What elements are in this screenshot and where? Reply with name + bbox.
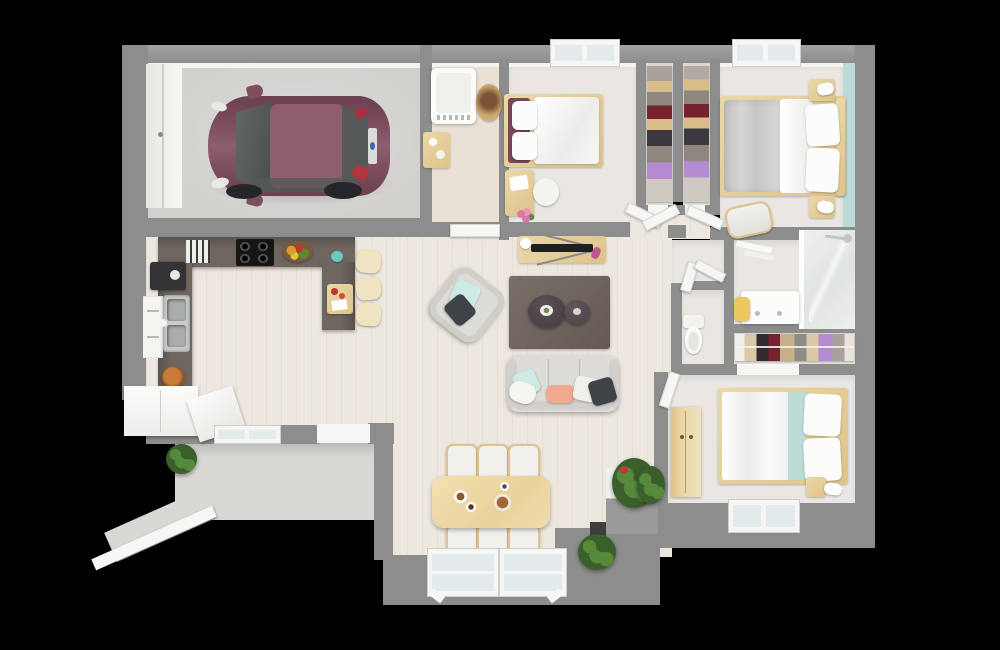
laundry-basket xyxy=(476,84,502,121)
recipe-card xyxy=(331,299,347,311)
nightstand xyxy=(809,196,835,218)
bed-duvet xyxy=(722,392,790,480)
window-glass xyxy=(733,505,761,527)
wall xyxy=(374,442,393,560)
wall xyxy=(855,45,875,520)
wardrobe-seam xyxy=(685,411,686,493)
laptop xyxy=(509,175,529,191)
bed-blanket xyxy=(724,100,782,192)
plant xyxy=(578,534,616,570)
laundry-table xyxy=(423,132,450,168)
wall xyxy=(668,225,686,238)
burner xyxy=(258,254,268,263)
bed-runner xyxy=(788,392,806,480)
faucet xyxy=(777,311,782,316)
car-roof xyxy=(270,104,344,188)
shower-glass xyxy=(799,230,804,329)
window-mullion xyxy=(432,571,494,574)
lamp xyxy=(816,82,835,97)
roast-dish xyxy=(494,494,511,511)
nightstand xyxy=(809,79,835,101)
window-glass xyxy=(555,45,582,61)
window-glass xyxy=(587,45,614,61)
dining-table xyxy=(432,476,550,528)
plate xyxy=(500,482,509,491)
rail xyxy=(735,346,854,348)
coffee-cup xyxy=(170,270,180,280)
flowers xyxy=(515,206,535,226)
television xyxy=(531,244,593,252)
pillow xyxy=(803,393,842,437)
washer-panel xyxy=(436,73,471,113)
clothes-rail xyxy=(735,334,854,361)
pillow xyxy=(805,103,841,147)
interior-door xyxy=(450,224,500,237)
burner xyxy=(240,242,250,251)
closet-rack xyxy=(647,66,672,202)
toilet-bowl xyxy=(685,326,702,354)
fruit-bowl xyxy=(282,241,313,262)
car-wheel xyxy=(226,184,262,199)
candle xyxy=(573,308,581,315)
wall xyxy=(673,60,683,202)
wall-face xyxy=(432,63,499,67)
appliance-handle xyxy=(147,336,159,338)
faucet xyxy=(159,319,167,327)
faucet xyxy=(755,311,760,316)
dishwasher xyxy=(143,296,163,358)
flower xyxy=(620,466,628,474)
mug xyxy=(331,251,343,262)
desk-chair xyxy=(531,176,559,208)
entry-door xyxy=(317,424,370,443)
window-glass xyxy=(766,505,795,527)
wall xyxy=(710,60,720,215)
chair-seat xyxy=(533,178,559,206)
door-glass xyxy=(249,430,276,439)
coffee-machine xyxy=(150,262,186,290)
washing-machine xyxy=(431,68,476,124)
window xyxy=(729,500,799,532)
tomato xyxy=(339,293,345,299)
wardrobe-knob xyxy=(680,435,684,439)
pillow xyxy=(512,132,537,160)
bar-stool xyxy=(355,276,382,301)
sink xyxy=(163,295,190,352)
closet-rack xyxy=(684,66,709,202)
nightstand xyxy=(806,477,826,497)
wall xyxy=(636,60,646,215)
wall-face xyxy=(148,63,420,68)
cutting-board xyxy=(327,284,353,314)
sink-basin xyxy=(167,325,186,347)
washer-vents xyxy=(437,115,470,120)
window-mullion xyxy=(504,571,562,574)
window xyxy=(733,40,800,66)
shower xyxy=(799,230,855,329)
pillow xyxy=(512,101,537,130)
speaker xyxy=(520,238,531,249)
wall xyxy=(671,283,682,375)
wall xyxy=(368,423,394,444)
cabinet-seam xyxy=(160,390,161,432)
window-glass xyxy=(737,45,763,61)
tv-console xyxy=(518,236,606,263)
garage-door xyxy=(146,64,182,208)
coffee-table-small xyxy=(564,300,590,324)
bottle xyxy=(429,138,437,146)
burner xyxy=(240,254,250,263)
pillow xyxy=(805,147,840,193)
floorplan-render xyxy=(0,0,1000,650)
sink-basin xyxy=(167,299,186,321)
cooktop xyxy=(236,239,274,266)
bed-duvet xyxy=(534,97,599,164)
plate xyxy=(454,490,467,503)
french-door xyxy=(215,426,280,443)
burner xyxy=(258,242,268,251)
shower-sheen xyxy=(809,236,849,322)
garage-door-handle xyxy=(158,132,163,137)
bowl xyxy=(540,305,553,316)
car-windshield xyxy=(230,102,272,190)
wardrobe xyxy=(671,407,701,497)
plant xyxy=(637,466,665,504)
car-wheel xyxy=(324,182,362,199)
car-license-plate xyxy=(370,142,375,150)
pillow xyxy=(803,437,842,482)
car xyxy=(208,94,390,198)
door-glass xyxy=(218,430,245,439)
car-rear-bumper xyxy=(368,128,377,164)
wall xyxy=(278,425,319,444)
porch-bush xyxy=(166,444,197,474)
plate xyxy=(466,502,476,512)
window xyxy=(551,40,619,66)
wall xyxy=(122,218,420,237)
vanity-stool xyxy=(734,297,750,321)
window-glass xyxy=(768,45,795,61)
sofa-pillow xyxy=(546,385,575,403)
toilet xyxy=(683,315,704,357)
bar-stool xyxy=(355,249,382,274)
coffee-table-large xyxy=(528,295,566,328)
wall xyxy=(122,45,148,230)
tomato xyxy=(331,288,338,295)
wall xyxy=(724,230,734,375)
kitchen-cabinets xyxy=(124,386,198,436)
bar-stool xyxy=(355,302,382,327)
spice-rack xyxy=(186,240,210,263)
lamp xyxy=(816,200,835,215)
wardrobe-knob xyxy=(689,435,693,439)
window xyxy=(428,549,498,596)
appliance-handle xyxy=(147,310,159,312)
door-sill xyxy=(737,364,799,375)
bottle xyxy=(436,150,445,159)
